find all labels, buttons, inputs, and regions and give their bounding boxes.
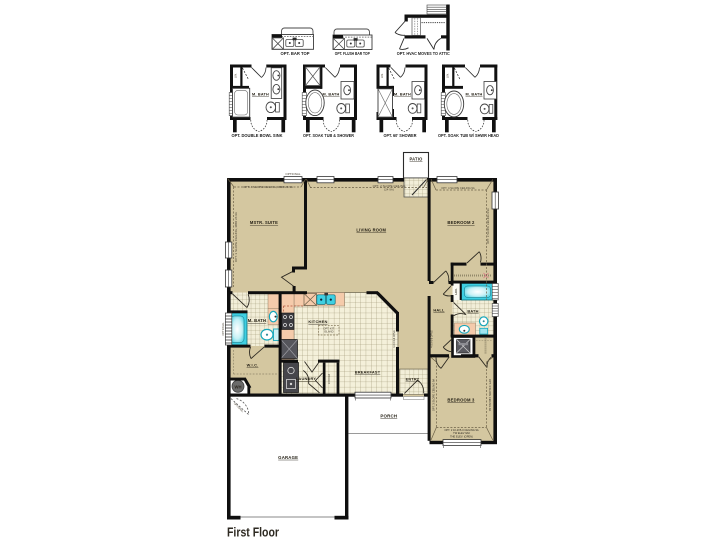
svg-text:ENTRY: ENTRY (406, 378, 420, 382)
svg-text:OPT. 60' SHOWER: OPT. 60' SHOWER (384, 133, 417, 138)
svg-text:WH: WH (235, 384, 242, 389)
svg-text:KITCHEN: KITCHEN (308, 319, 327, 324)
svg-text:OPT. SOAK TUB & SHOWER: OPT. SOAK TUB & SHOWER (303, 133, 354, 138)
svg-text:MSTR. SUITE: MSTR. SUITE (250, 220, 278, 225)
svg-text:OPT. 4 SLOPE CEILING, MBR 26 9: OPT. 4 SLOPE CEILING, MBR 26 9A (243, 185, 293, 189)
svg-text:OPT. FLUSH BAR TOP: OPT. FLUSH BAR TOP (335, 51, 370, 56)
svg-text:(24 9A): (24 9A) (384, 188, 394, 192)
svg-text:M. BATH: M. BATH (394, 93, 411, 97)
svg-text:BEDROOM 3: BEDROOM 3 (447, 398, 475, 403)
svg-text:OPT. 3 SLOPE CEILING 9A: OPT. 3 SLOPE CEILING 9A (432, 379, 436, 412)
svg-text:HALL: HALL (433, 308, 445, 313)
svg-text:ISLAND: ISLAND (324, 330, 334, 334)
svg-text:OPT. 4 SLOPE CEILING 9A: OPT. 4 SLOPE CEILING 9A (441, 186, 475, 190)
svg-text:M. BATH: M. BATH (466, 93, 483, 97)
svg-text:LIVING ROOM: LIVING ROOM (356, 227, 386, 232)
svg-text:GARAGE: GARAGE (278, 455, 298, 460)
svg-text:BATH: BATH (467, 309, 478, 314)
svg-text:OPT. DOUBLE BOWL SINK: OPT. DOUBLE BOWL SINK (232, 133, 283, 138)
svg-text:2-0 X 6-8: 2-0 X 6-8 (328, 373, 331, 384)
svg-text:OPT. 3 SLOPE CEILING 9A: OPT. 3 SLOPE CEILING 9A (488, 379, 492, 412)
svg-text:PORCH: PORCH (380, 414, 397, 419)
svg-text:LIN.: LIN. (234, 73, 238, 78)
svg-text:THE ELEV. (OPEN): THE ELEV. (OPEN) (450, 434, 473, 438)
svg-text:First Floor: First Floor (227, 525, 279, 540)
svg-text:OPTIONAL: OPTIONAL (285, 172, 301, 176)
svg-text:BREAKFAST: BREAKFAST (355, 370, 381, 375)
svg-text:PATIO: PATIO (410, 157, 424, 162)
svg-text:4-0 X 6-8 OPNG: 4-0 X 6-8 OPNG (431, 330, 434, 348)
svg-text:OPTIONAL: OPTIONAL (221, 322, 225, 336)
svg-text:M. BATH: M. BATH (323, 93, 340, 97)
svg-text:4-0 X 6-8 OPNG: 4-0 X 6-8 OPNG (393, 330, 396, 348)
svg-text:BEDROOM 2: BEDROOM 2 (447, 220, 475, 225)
svg-text:LIN.: LIN. (454, 288, 458, 294)
svg-text:W.I.C.: W.I.C. (247, 363, 259, 368)
svg-text:M. BATH: M. BATH (252, 93, 269, 97)
svg-text:LIN.: LIN. (446, 73, 450, 78)
svg-text:OPT. HVAC MOVES TO ATTIC: OPT. HVAC MOVES TO ATTIC (397, 51, 450, 56)
svg-text:M. BATH: M. BATH (248, 318, 267, 323)
svg-text:LIN.: LIN. (380, 73, 384, 78)
svg-text:OPT. 3 SLOPE CEILING, MBR 26 9: OPT. 3 SLOPE CEILING, MBR 26 9A (234, 212, 238, 262)
svg-text:LAUNDRY: LAUNDRY (296, 376, 316, 381)
svg-text:OPT. BAR TOP: OPT. BAR TOP (281, 51, 310, 56)
svg-text:OPT. SOAK TUB W/ SHWR HEAD: OPT. SOAK TUB W/ SHWR HEAD (438, 133, 499, 138)
svg-text:OPT. 3 SLOPE CEILING 9 9A: OPT. 3 SLOPE CEILING 9 9A (486, 208, 490, 244)
